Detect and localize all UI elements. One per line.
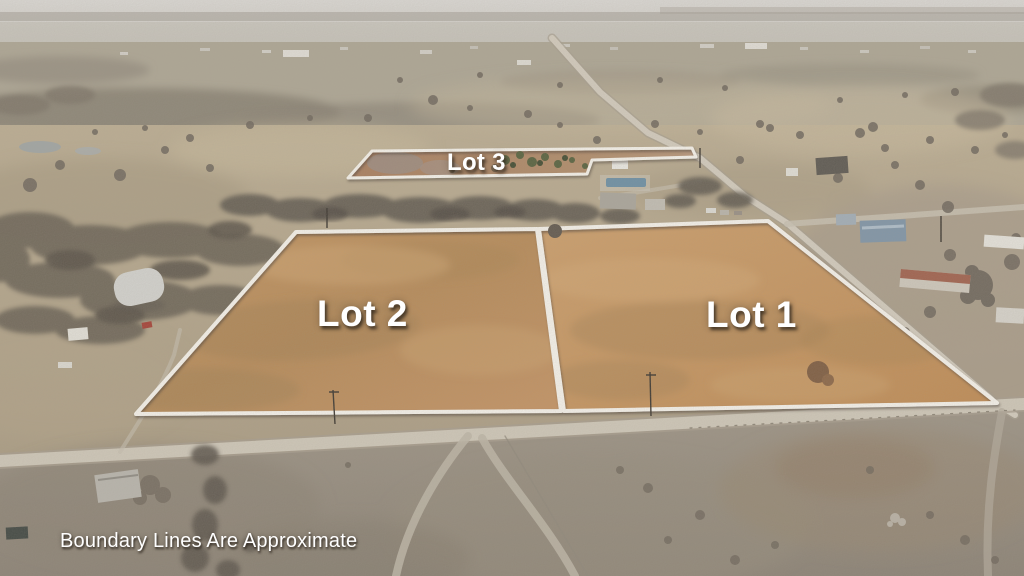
lot-3-label: Lot 3 [447,151,506,175]
aerial-photo: Lot 1 Lot 2 Lot 3 Boundary Lines Are App… [0,0,1024,576]
lot-2-label: Lot 2 [317,295,408,332]
lot-1-label: Lot 1 [706,296,797,333]
aerial-photo-canvas [0,0,1024,576]
photo-grain [0,0,1024,576]
boundary-disclaimer-label: Boundary Lines Are Approximate [60,531,357,551]
